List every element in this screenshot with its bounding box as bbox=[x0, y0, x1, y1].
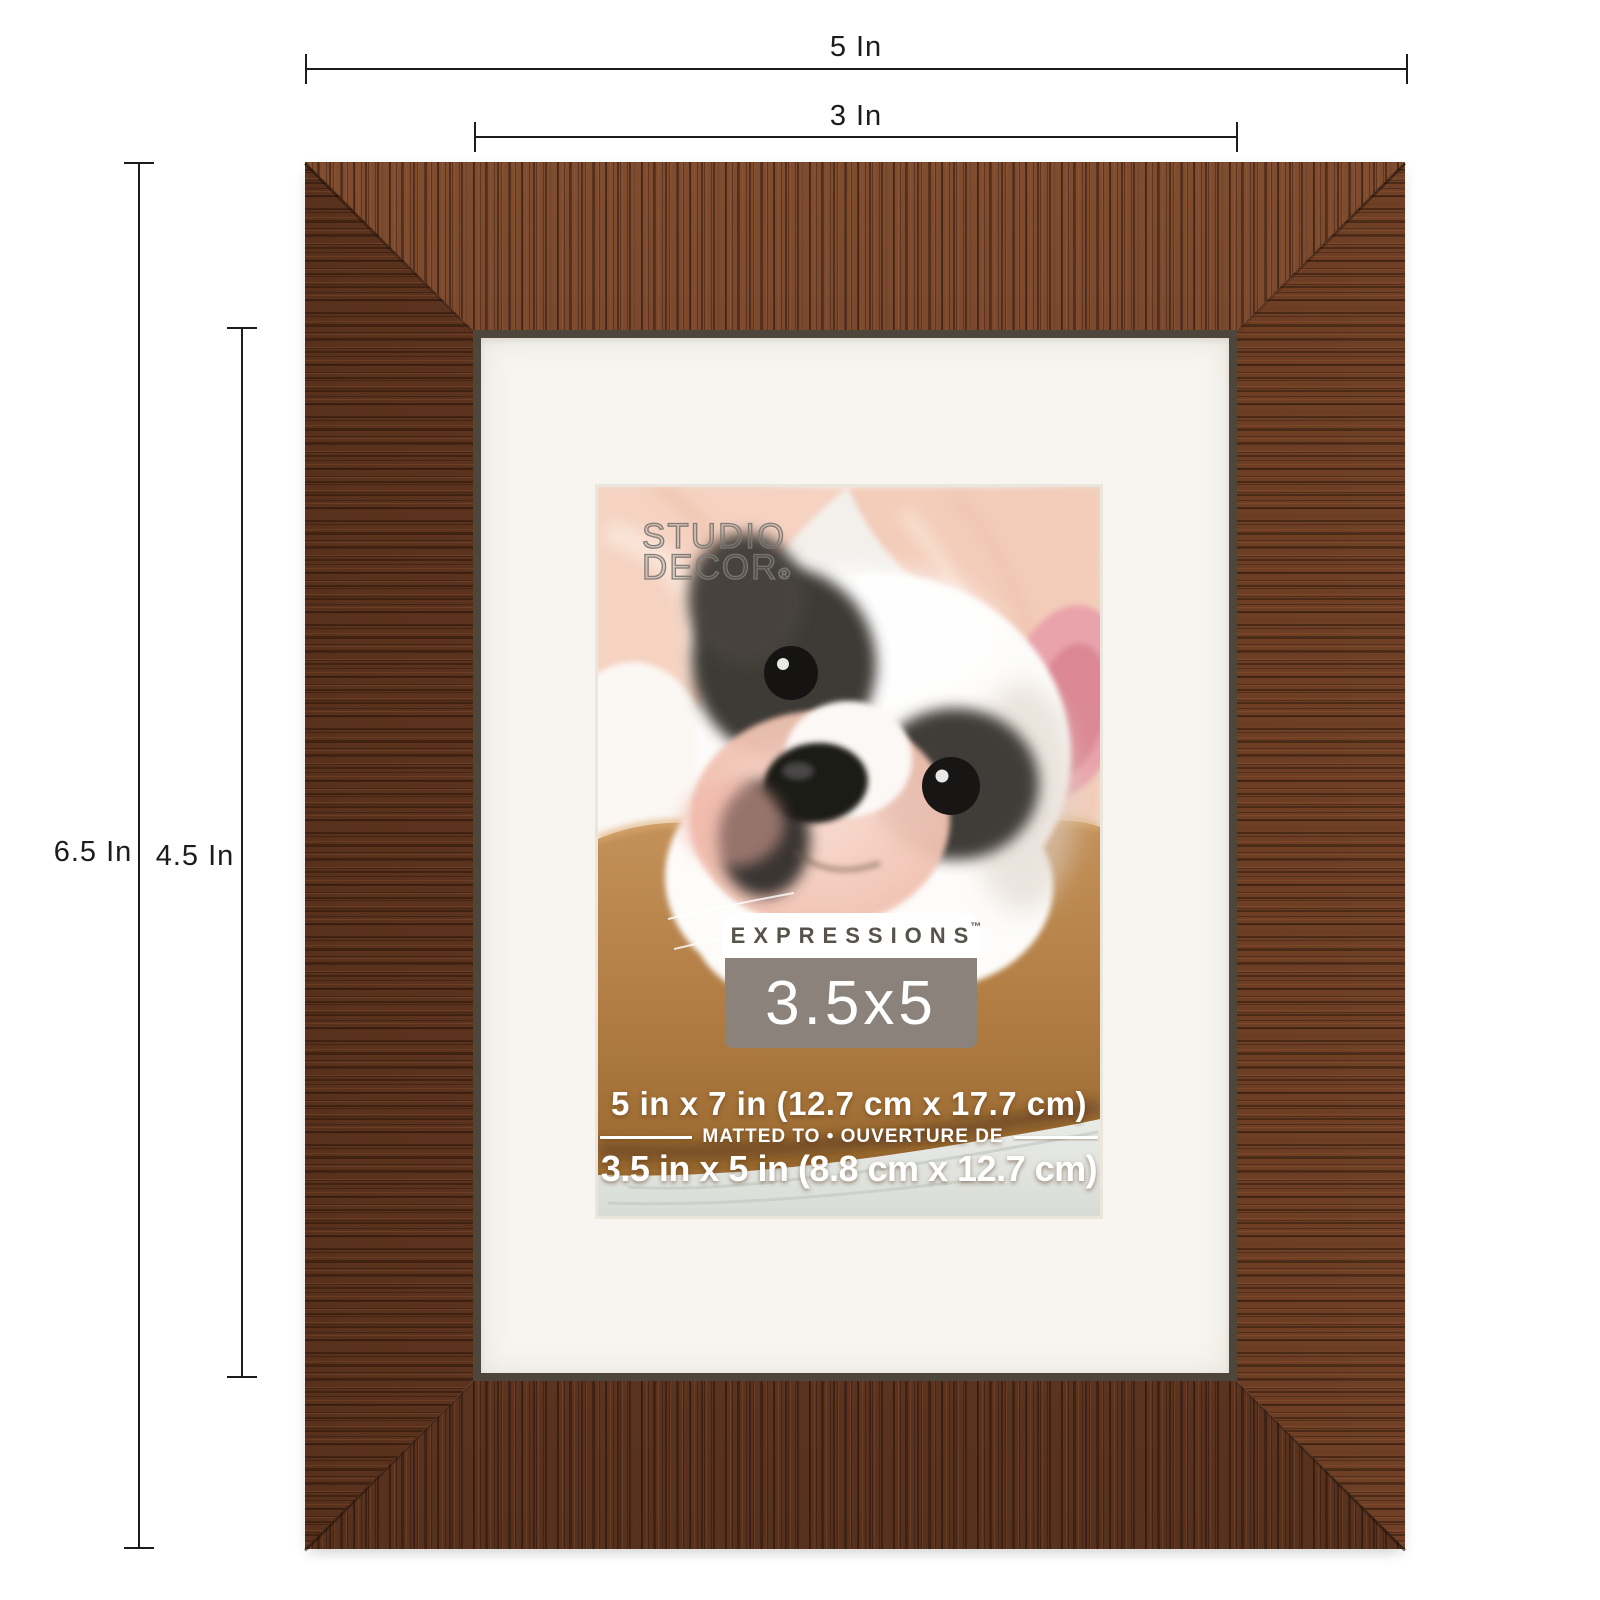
studio-decor-logo: STUDIO DECOR® bbox=[642, 521, 792, 590]
inner-height-top-tick bbox=[227, 327, 257, 329]
brand-name: EXPRESSIONS bbox=[721, 923, 977, 949]
frame-size-text: 5 in x 7 in (12.7 cm x 17.7 cm) bbox=[598, 1085, 1100, 1123]
size-badge: 3.5x5 bbox=[725, 958, 977, 1048]
inner-width-left-tick bbox=[474, 122, 476, 152]
outer-width-dimension-line bbox=[306, 68, 1407, 70]
outer-width-right-tick bbox=[1406, 54, 1408, 84]
expressions-brand-band: EXPRESSIONS ™ bbox=[722, 913, 980, 958]
logo-line2: DECOR bbox=[642, 548, 778, 587]
outer-height-label: 6.5 In bbox=[38, 836, 148, 869]
puppy-right-eye bbox=[922, 757, 980, 815]
matted-to-text: MATTED TO • OUVERTURE DE bbox=[702, 1126, 1003, 1148]
outer-width-left-tick bbox=[305, 54, 307, 84]
outer-height-bottom-tick bbox=[124, 1547, 154, 1549]
inner-width-right-tick bbox=[1236, 122, 1238, 152]
inner-height-label: 4.5 In bbox=[140, 840, 250, 873]
outer-width-label: 5 In bbox=[801, 31, 911, 64]
picture-frame: STUDIO DECOR® EXPRESSIONS ™ 3.5x5 5 in x… bbox=[305, 162, 1405, 1549]
puppy-insert-photo: STUDIO DECOR® EXPRESSIONS ™ 3.5x5 5 in x… bbox=[598, 487, 1100, 1216]
opening-size-text: 3.5 in x 5 in (8.8 cm x 12.7 cm) bbox=[598, 1148, 1100, 1190]
matted-left-rule bbox=[600, 1136, 692, 1139]
size-badge-text: 3.5x5 bbox=[765, 968, 937, 1039]
inner-width-dimension-line bbox=[475, 136, 1237, 138]
outer-height-top-tick bbox=[124, 162, 154, 164]
registered-mark: ® bbox=[778, 566, 792, 583]
product-dimension-image: 5 In 3 In 6.5 In 4.5 In bbox=[0, 0, 1600, 1600]
matted-to-row: MATTED TO • OUVERTURE DE bbox=[598, 1126, 1100, 1148]
inner-width-label: 3 In bbox=[801, 100, 911, 133]
trademark-mark: ™ bbox=[970, 921, 981, 933]
puppy-left-eye bbox=[764, 646, 818, 700]
matted-right-rule bbox=[1014, 1136, 1098, 1139]
inner-height-bottom-tick bbox=[227, 1376, 257, 1378]
